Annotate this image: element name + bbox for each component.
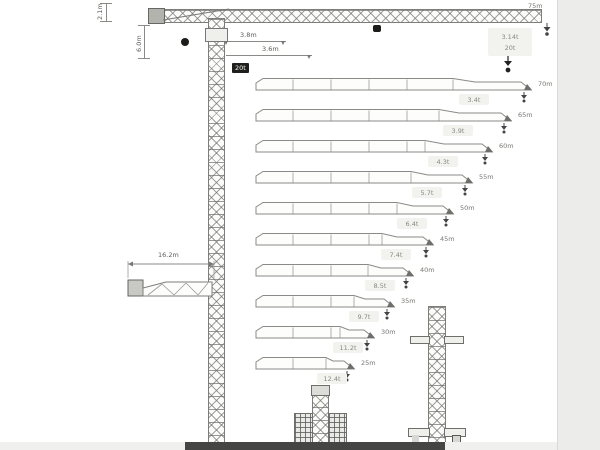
jib-outline [255,169,475,186]
jib-outline [255,107,514,124]
row-tip-load-value: 12.4t [323,375,340,383]
jib-outline [255,200,456,217]
row-tip-load-box: 4.3t [428,156,458,167]
bottom-page-edge-bar [185,442,445,450]
jib-outline [255,355,357,372]
crib-block-right [328,413,347,444]
crane-diagram-page: 2.1m 6.0m 3.8m 3.6m 75m 3.14t 20t 20t [0,0,600,450]
row-tip-load-box: 9.7t [349,311,379,322]
jib-outline [255,138,495,155]
jib-config-row: 40m 8.5t [255,262,472,292]
hook-icon-large [502,56,514,74]
dim-tick [138,58,150,59]
counterjib-detail-drawing [126,258,218,300]
row-hook-icon [383,309,391,320]
jib-config-row: 50m 6.4t [255,200,512,230]
dim-line-head [106,3,107,21]
jib-outline [255,76,534,93]
right-margin [557,0,600,450]
jib-config-row: 55m 5.7t [255,169,531,199]
jib-config-row: 25m 12.4t [255,355,413,385]
tip-hook-icon [542,23,552,37]
trolley-mark [373,25,381,32]
row-hook-icon [520,92,528,103]
row-hook-icon [422,247,430,258]
row-hook-icon [481,154,489,165]
jib-outline [255,324,377,341]
dim-head-height-label: 2.1m [97,3,104,20]
row-length-label: 40m [420,266,435,274]
row-tip-load-box: 11.2t [333,342,363,353]
row-tip-load-value: 9.7t [358,313,371,321]
row-hook-icon [442,216,450,227]
base-foot-left [412,435,419,442]
row-tip-load-value: 5.7t [421,189,434,197]
row-length-label: 60m [499,142,514,150]
main-jib-length-label: 75m [528,2,543,10]
row-tip-load-value: 8.5t [374,282,387,290]
jib-config-row: 60m 4.3t [255,138,551,168]
row-tip-load-value: 4.3t [437,158,450,166]
dim-arrow [224,41,228,45]
row-tip-load-value: 11.2t [339,344,356,352]
dim-arrow [307,55,311,59]
tip-load-line2: 20t [505,44,516,52]
cage-wing-right [444,336,464,344]
jib-outline [255,293,397,310]
crib-block-left [294,413,313,444]
row-length-label: 45m [440,235,455,243]
tip-load-line1: 3.14t [501,33,518,41]
climbing-tower [428,306,446,444]
row-length-label: 35m [401,297,416,305]
dim-inner-a-label: 3.8m [240,32,257,39]
jib-outline [255,231,436,248]
row-tip-load-value: 3.9t [452,127,465,135]
mast-section-detail [312,393,329,444]
jib-config-row: 30m 11.2t [255,324,433,354]
row-tip-load-box: 6.4t [397,218,427,229]
row-tip-load-box: 3.4t [459,94,489,105]
dim-line-b [226,55,312,56]
row-tip-load-box: 7.4t [381,249,411,260]
row-hook-icon [500,123,508,134]
jib-config-row: 45m 7.4t [255,231,492,261]
row-length-label: 25m [361,359,376,367]
hook-block-dot [181,38,189,46]
jib-config-row: 70m 3.4t [255,76,590,106]
row-tip-load-value: 3.4t [468,96,481,104]
row-tip-load-value: 6.4t [406,220,419,228]
row-hook-icon [363,340,371,351]
dim-arrow [281,41,285,45]
jib-outline [255,262,416,279]
cage-wing-left [410,336,430,344]
dim-line-towertop [144,25,145,58]
row-tip-load-box: 8.5t [365,280,395,291]
row-tip-load-value: 7.4t [390,251,403,259]
row-length-label: 65m [518,111,533,119]
row-length-label: 30m [381,328,396,336]
row-tip-load-box: 3.9t [443,125,473,136]
row-length-label: 55m [479,173,494,181]
dim-line-a [226,41,286,42]
tower-mast [208,18,225,444]
jib-config-row: 65m 3.9t [255,107,570,137]
row-tip-load-box: 5.7t [412,187,442,198]
row-tip-load-box: 12.4t [317,373,347,384]
row-length-label: 70m [538,80,553,88]
dim-tower-top-label: 6.0m [136,35,143,52]
row-length-label: 50m [460,204,475,212]
mast-collar [205,28,228,42]
dim-inner-b-label: 3.6m [262,46,279,53]
row-hook-icon [402,278,410,289]
mast-section-cap [311,385,330,396]
tip-load-box: 3.14t 20t [488,28,532,56]
row-hook-icon [461,185,469,196]
max-load-chip: 20t [232,63,249,73]
dim-tick [100,21,112,22]
jib-config-row: 35m 9.7t [255,293,453,323]
dim-tick [138,25,150,26]
